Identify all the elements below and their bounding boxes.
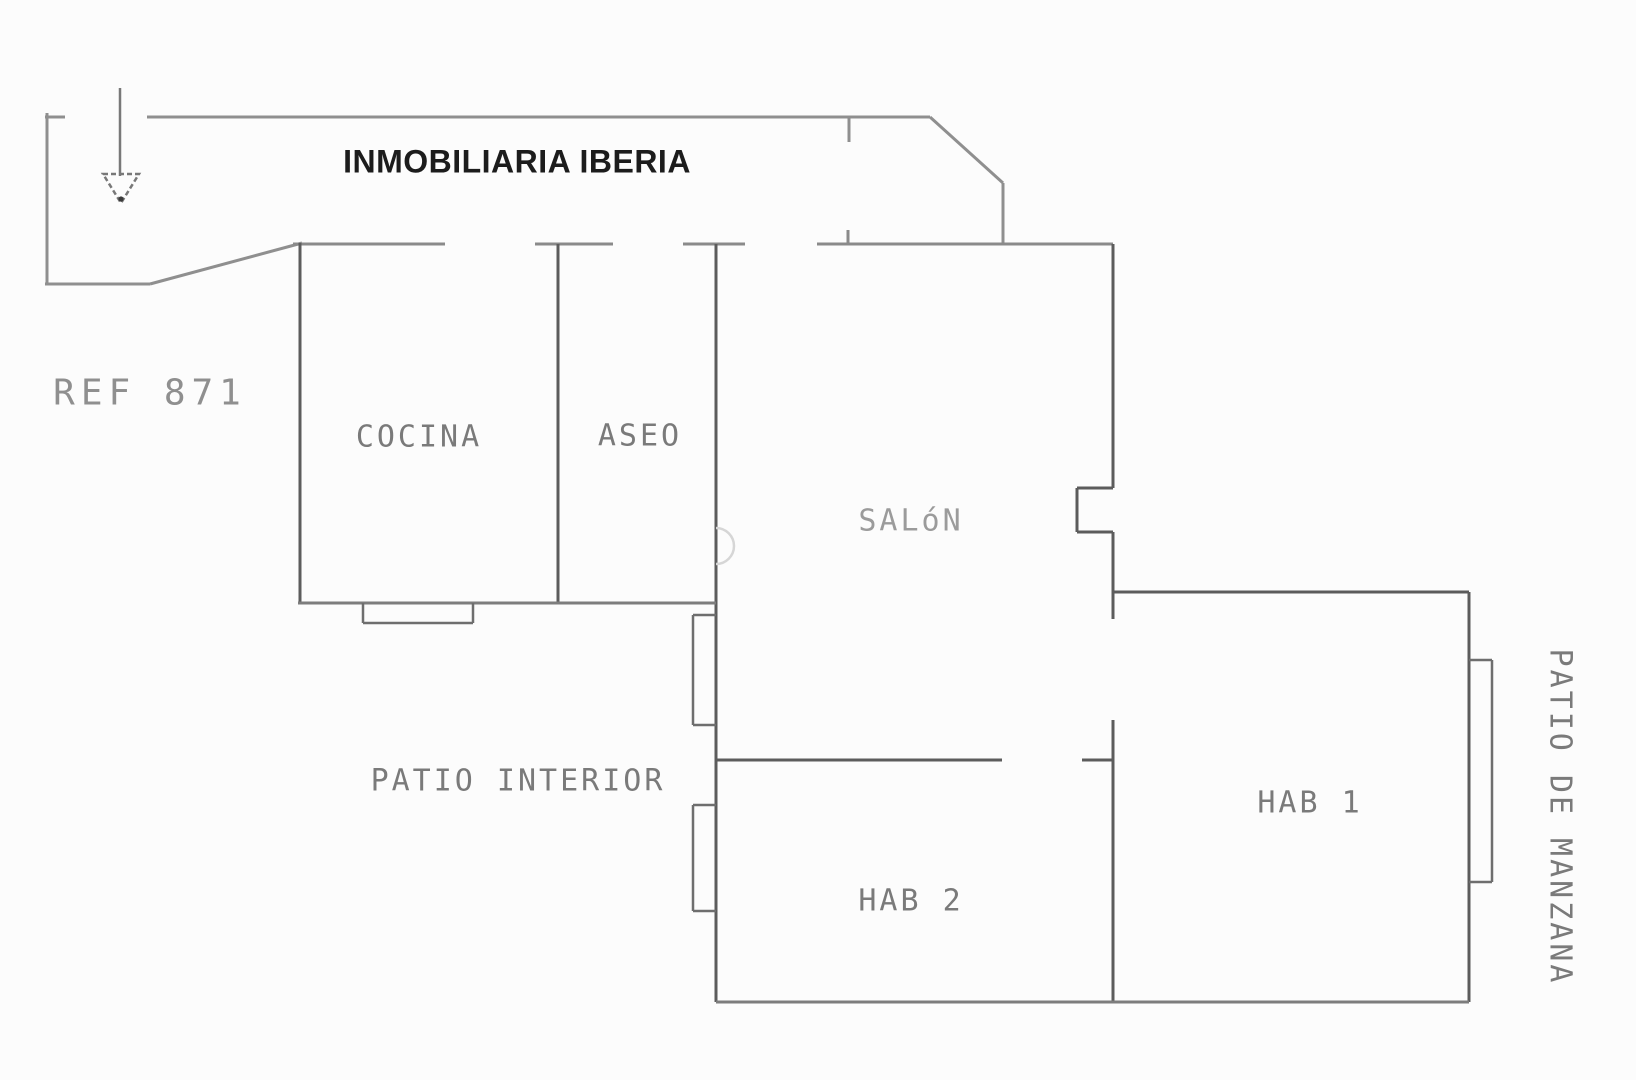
area-label-patio-interior: PATIO INTERIOR: [371, 764, 666, 799]
floor-plan-canvas: INMOBILIARIA IBERIA REF 871 COCINA ASEO …: [0, 0, 1636, 1080]
window-patio-upper: [693, 615, 716, 725]
entrance-arrow-icon: [103, 88, 139, 203]
agency-title: INMOBILIARIA IBERIA: [343, 144, 691, 181]
area-label-patio-de-manzana: PATIO DE MANZANA: [1543, 649, 1578, 986]
windows: [363, 603, 1492, 911]
door-swing-arc: [716, 528, 734, 564]
room-label-hab2: HAB 2: [858, 884, 963, 919]
room-label-cocina: COCINA: [356, 420, 482, 455]
room-label-aseo: ASEO: [598, 419, 682, 454]
entrance-arrow-tip-dot: [118, 196, 123, 201]
window-patio-lower: [693, 805, 716, 911]
window-hab1: [1469, 660, 1492, 882]
window-kitchen: [363, 603, 473, 623]
room-label-salon: SALóN: [858, 504, 963, 539]
outer-terrace-walls: [45, 113, 1003, 284]
room-label-hab1: HAB 1: [1257, 786, 1362, 821]
apartment-top-wall: [293, 230, 1113, 244]
floor-plan-drawing: [0, 0, 1636, 1080]
reference-number: REF 871: [53, 373, 247, 414]
